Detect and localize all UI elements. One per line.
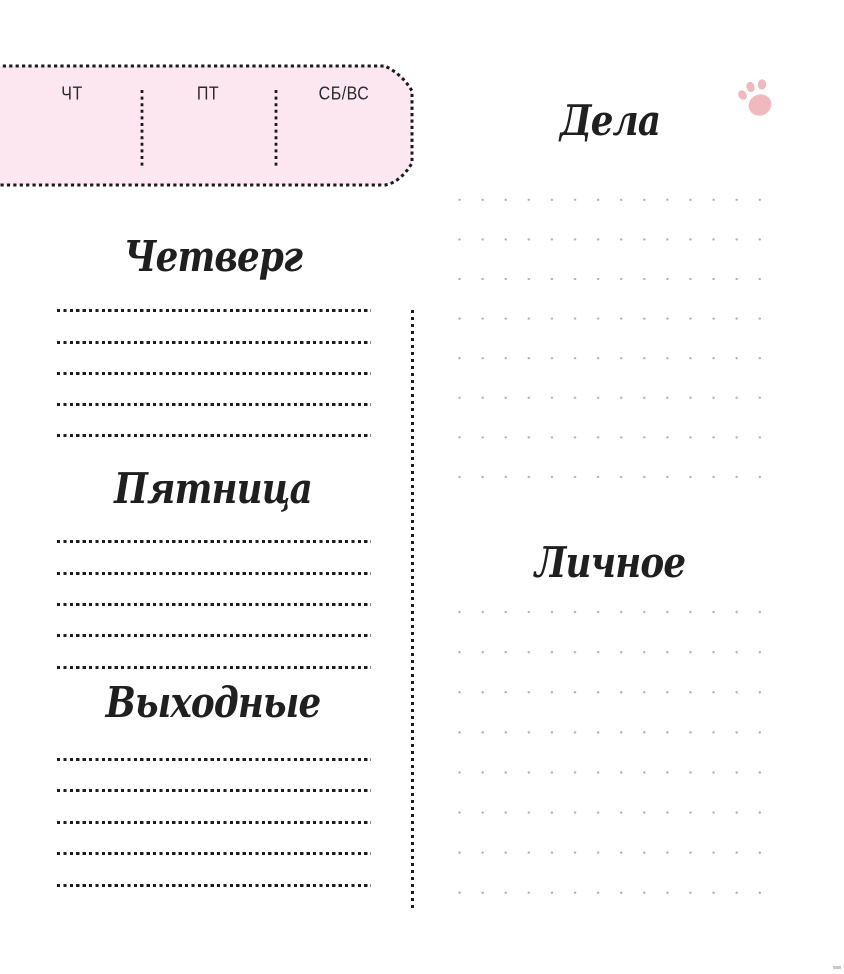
writing-line (57, 884, 371, 887)
column-divider (411, 310, 414, 910)
section-title-personal: Личное (472, 538, 747, 587)
section-title-thursday: Четверг (66, 232, 360, 281)
writing-line (57, 634, 371, 637)
writing-line (57, 852, 371, 855)
writing-line (57, 309, 371, 312)
day-tab-label-thursday: ЧТ (8, 80, 136, 111)
day-tab-label-weekend: СБ/ВС (280, 80, 408, 111)
planner-page: ЧТ ПТ СБ/ВС Дела Личное Четверг Пятница … (0, 0, 844, 974)
writing-line (57, 540, 371, 543)
writing-line (57, 666, 371, 669)
writing-line (57, 372, 371, 375)
page-corner-mark (833, 966, 841, 969)
dot-grid-personal (448, 592, 772, 913)
section-title-friday: Пятница (66, 464, 360, 513)
section-title-tasks: Дела (472, 96, 747, 145)
writing-line (57, 341, 371, 344)
writing-line (57, 572, 371, 575)
day-tab-label-friday: ПТ (146, 80, 270, 111)
section-title-weekend: Выходные (66, 678, 360, 727)
writing-line (57, 434, 371, 437)
writing-line (57, 403, 371, 406)
paw-icon (736, 79, 774, 119)
writing-line (57, 821, 371, 824)
dot-grid-tasks (448, 180, 772, 497)
writing-line (57, 603, 371, 606)
writing-line (57, 789, 371, 792)
writing-line (57, 758, 371, 761)
